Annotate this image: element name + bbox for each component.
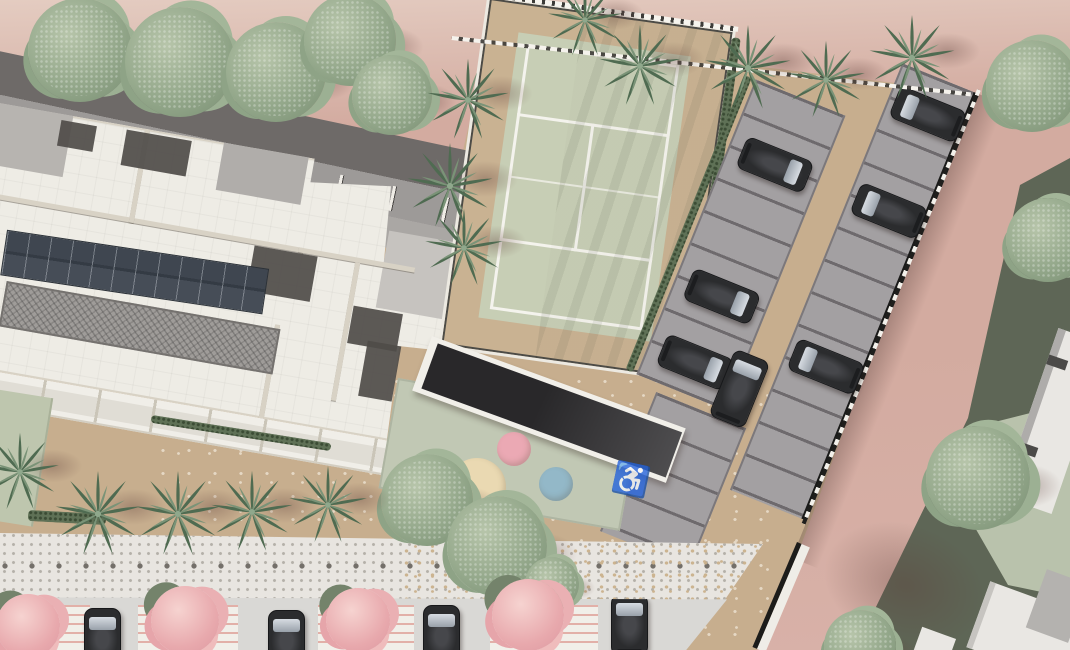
- car-rear: [740, 142, 752, 164]
- car-windshield: [703, 356, 724, 383]
- car-rear: [660, 340, 672, 362]
- car-windshield: [797, 346, 818, 373]
- car-windshield: [860, 190, 881, 217]
- site-plan-canvas: ♿: [0, 0, 1070, 650]
- parked-car: [735, 136, 814, 194]
- street-parked-car: [423, 605, 460, 650]
- car-windshield: [899, 94, 920, 121]
- street-planting-bay: [490, 605, 598, 650]
- street-parked-car: [268, 610, 305, 650]
- car-windshield: [616, 603, 643, 616]
- parked-car: [849, 182, 928, 240]
- car-windshield: [732, 359, 763, 382]
- street-planting-bay: [318, 605, 414, 650]
- car-windshield: [273, 619, 300, 632]
- parked-car: [682, 267, 761, 325]
- car-windshield: [89, 617, 116, 630]
- street-parked-car: [84, 608, 121, 650]
- street-parking-strip: [0, 595, 730, 650]
- roof-slot: [1016, 442, 1038, 458]
- car-windshield: [782, 159, 803, 186]
- roof-slot: [1046, 355, 1068, 371]
- street-parked-car: [611, 594, 648, 650]
- car-windshield: [729, 290, 750, 317]
- street-planting-bay: [138, 605, 238, 650]
- car-rear: [687, 274, 699, 296]
- accessible-parking-icon: ♿: [609, 462, 652, 499]
- car-windshield: [428, 614, 455, 627]
- street-planting-bay: [6, 605, 90, 650]
- parked-car: [786, 337, 865, 395]
